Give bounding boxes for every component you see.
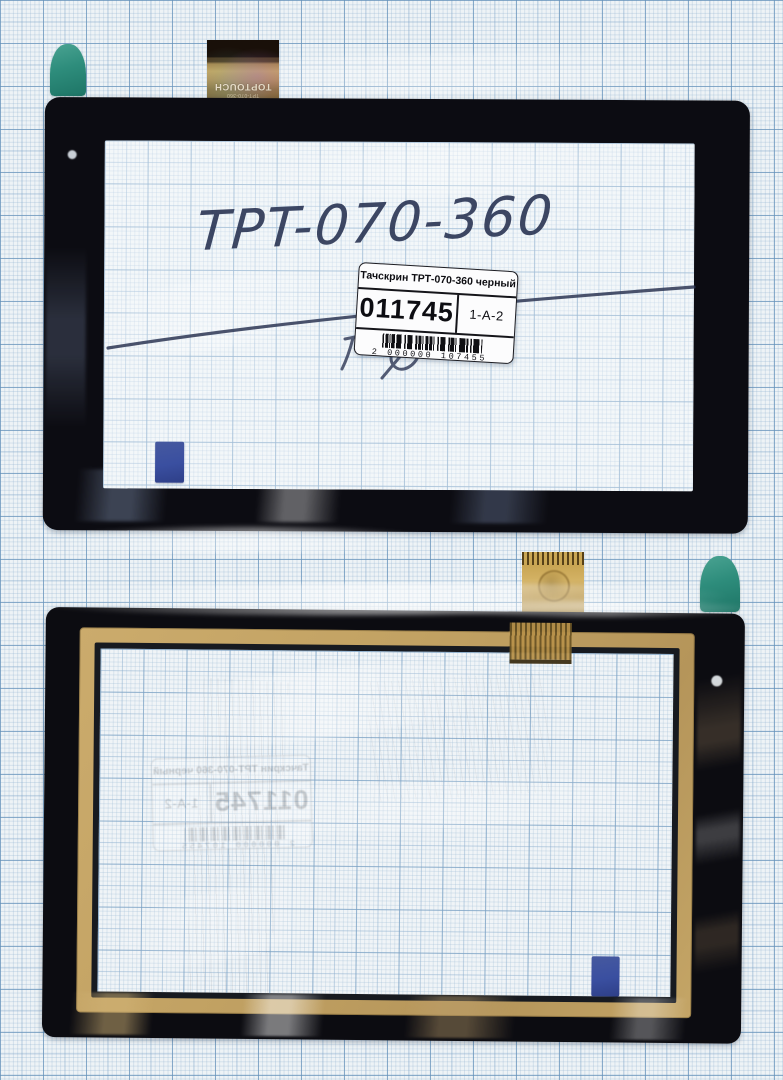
teal-sticker-front: [50, 44, 86, 96]
blue-sticker-front: [155, 442, 184, 483]
window-sheen-left: [103, 259, 338, 372]
graph-paper-background: TPT-070-360 TOPTOUCH TPT-070-360 Тачскри…: [0, 0, 783, 1080]
toptouch-brand-text: TOPTOUCH: [207, 81, 279, 92]
label-slot: 1-A-2: [457, 295, 516, 336]
touchscreen-back-view: Тачскрин ТРТ-070-360 черный 011745 1-A-2…: [42, 607, 745, 1044]
flex-cable-back: [522, 552, 584, 614]
mirrored-label-code: 011745: [209, 782, 311, 823]
mirrored-label-slot: 1-A-2: [152, 784, 210, 823]
back-frame-glare-bottom: [52, 992, 732, 1041]
product-label: Тачскрин ТРТ-070-360 черный 011745 1-A-2…: [353, 262, 518, 364]
camera-hole-front: [68, 150, 77, 159]
frame-glare-left: [45, 247, 86, 427]
mirrored-label-through-glass: Тачскрин ТРТ-070-360 черный 011745 1-A-2…: [151, 755, 313, 852]
cable-bonding-area-back: [509, 622, 571, 664]
glass-smudge-marks-2: [366, 672, 553, 803]
handwritten-model-text: TPT-070-360: [194, 183, 556, 263]
blue-sticker-back: [591, 956, 619, 996]
flex-cable-front: TPT-070-360 TOPTOUCH: [207, 40, 279, 100]
cable-round-stamp: [538, 570, 570, 602]
back-frame-glare-right: [694, 663, 741, 993]
label-code: 011745: [356, 289, 459, 333]
cable-connector-teeth: [522, 552, 584, 565]
teal-sticker-back: [700, 556, 740, 612]
mirrored-label-title: Тачскрин ТРТ-070-360 черный: [152, 756, 311, 786]
